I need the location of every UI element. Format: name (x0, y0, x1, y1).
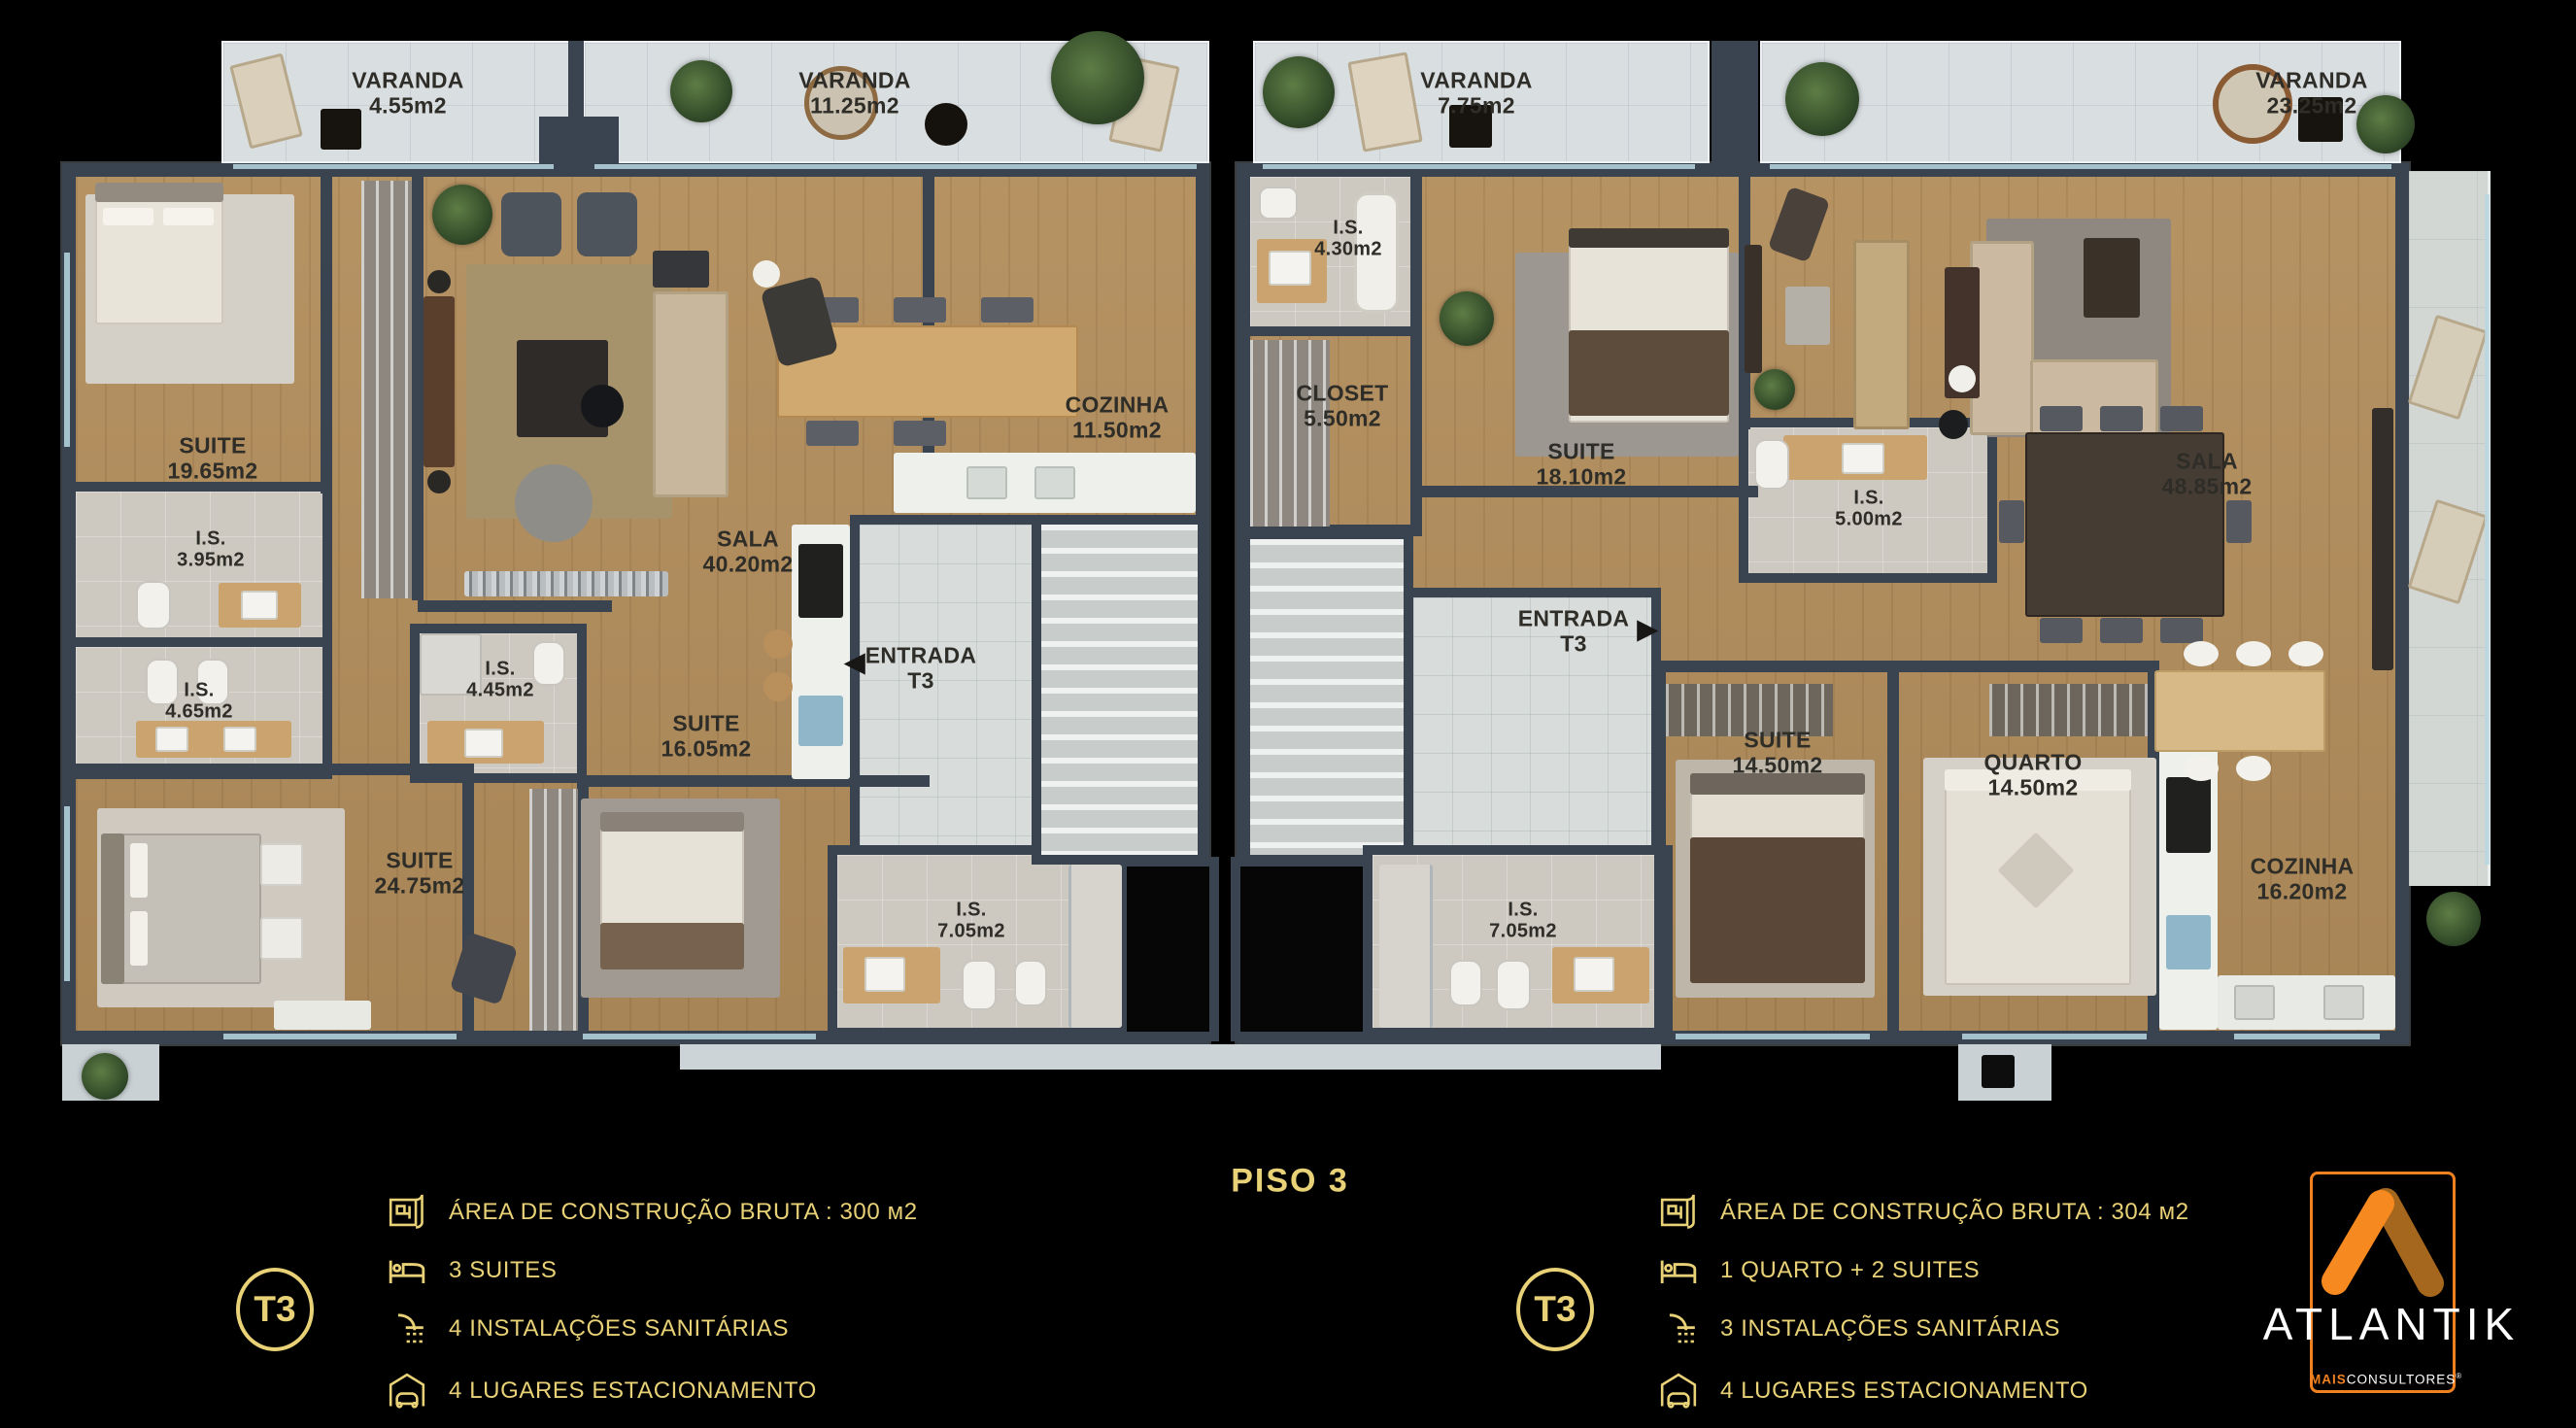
room-label-is-705-right: I.S.7.05m2 (1489, 900, 1557, 943)
room-area: 4.55m2 (369, 93, 447, 119)
chair (2160, 618, 2203, 643)
room-label-varanda-2: VARANDA11.25m2 (798, 68, 910, 119)
room-area: 14.50m2 (1988, 775, 2079, 800)
page-title: PISO 3 (1231, 1163, 1349, 1201)
chair (2236, 641, 2271, 666)
elevator-shaft-left (1117, 857, 1219, 1041)
headboard (95, 183, 223, 202)
pillow (130, 911, 148, 966)
room-label-suite-1810: SUITE18.10m2 (1537, 439, 1627, 490)
room-name: I.S. (195, 528, 225, 550)
chair (2184, 756, 2219, 781)
toilet (532, 641, 565, 686)
room-label-is-395: I.S.3.95m2 (177, 528, 245, 572)
pouf (1939, 410, 1968, 439)
pouf (427, 270, 451, 293)
tv-console (2372, 408, 2393, 670)
shower (1379, 865, 1433, 1028)
legend-text: 3 SUITES (449, 1257, 558, 1284)
window (583, 1034, 816, 1039)
room-name: CLOSET (1296, 381, 1388, 406)
entrance-arrow-left-icon: ◀ (845, 648, 865, 678)
window (223, 1034, 457, 1039)
room-name: VARANDA (2255, 68, 2367, 93)
legend-right-row-area: ÁREA DE CONSTRUÇÃO BRUTA : 304 м2 (1656, 1189, 2189, 1236)
room-name: SUITE (179, 433, 246, 459)
cooktop (798, 544, 843, 618)
side-table (1949, 365, 1976, 392)
window (1770, 164, 2391, 169)
headboard (101, 833, 124, 984)
plant (432, 185, 492, 245)
room-name: COZINHA (1066, 392, 1169, 418)
ottoman (260, 917, 303, 960)
wall (66, 764, 474, 775)
room-name: QUARTO (1983, 750, 2082, 775)
bidet (1014, 960, 1047, 1006)
wall (1410, 177, 1422, 536)
room-label-entrada-right: ENTRADAT3 (1518, 606, 1630, 657)
room-area: 16.05m2 (661, 736, 752, 762)
room-label-cozinha-right: COZINHA16.20m2 (2251, 854, 2355, 904)
coffee-table (2084, 238, 2140, 318)
typology-label: T3 (254, 1289, 295, 1330)
room-area: 23.25m2 (2267, 93, 2357, 119)
side-table (753, 260, 780, 288)
sideboard (1745, 245, 1762, 373)
room-label-is-465: I.S.4.65m2 (165, 680, 233, 724)
kitchen-sink (1034, 466, 1075, 499)
room-label-is-705-left: I.S.7.05m2 (937, 900, 1005, 943)
window (1263, 164, 1695, 169)
window (233, 164, 554, 169)
shower (1068, 865, 1122, 1028)
bar-table (2154, 670, 2325, 752)
plant (1051, 31, 1144, 124)
toilet (1496, 960, 1531, 1010)
room-name: ENTRADA (865, 643, 977, 668)
room-area: 48.85m2 (2162, 474, 2253, 499)
bed-throw (1690, 837, 1865, 983)
window (2234, 1034, 2380, 1039)
pillow (163, 208, 214, 225)
legend-right-row-sanitarias: 3 INSTALAÇÕES SANITÁRIAS (1656, 1306, 2060, 1352)
window (64, 806, 70, 981)
room-label-is-445: I.S.4.45m2 (466, 659, 534, 702)
sink (1269, 251, 1311, 286)
entrance-arrow-right-icon: ▶ (1638, 615, 1658, 645)
ottoman (260, 843, 303, 886)
room-area: 4.30m2 (1314, 239, 1382, 260)
room-area: 7.75m2 (1438, 93, 1515, 119)
registered-mark: ® (2456, 1372, 2462, 1380)
toilet (136, 581, 171, 629)
room-area: 5.50m2 (1304, 406, 1381, 431)
plant (1263, 56, 1335, 128)
garage-icon (1656, 1369, 1701, 1413)
room-name: I.S. (1333, 218, 1363, 239)
plant (1785, 62, 1859, 136)
kitchen-sink (798, 696, 843, 746)
plant (1440, 291, 1494, 346)
sink (155, 727, 188, 752)
atlantik-subtitle: MAISCONSULTORES® (2310, 1372, 2456, 1387)
stool (763, 672, 793, 701)
typology-badge-left: T3 (236, 1268, 314, 1351)
room-area: 5.00m2 (1835, 509, 1903, 530)
room-name: I.S. (485, 659, 515, 680)
subtitle-rest: CONSULTORES (2347, 1373, 2457, 1387)
chair (2100, 618, 2143, 643)
legend-left-row-area: ÁREA DE CONSTRUÇÃO BRUTA : 300 м2 (385, 1189, 918, 1236)
chair (2226, 500, 2252, 543)
room-label-sala-right: SALA48.85m2 (2162, 449, 2253, 499)
room-area: 4.45m2 (466, 680, 534, 701)
wall-stub (539, 117, 619, 165)
atlantik-chevron-icon (2313, 1184, 2453, 1301)
room-name: VARANDA (352, 68, 463, 93)
room-area: 7.05m2 (1489, 921, 1557, 942)
headboard (1569, 228, 1729, 248)
wall (1654, 661, 1666, 1031)
wall (1887, 672, 1899, 1031)
room-name: SALA (2176, 449, 2238, 474)
chair (806, 421, 859, 446)
typology-badge-right: T3 (1516, 1268, 1594, 1351)
plant (670, 60, 732, 122)
bed-throw (1569, 330, 1729, 416)
room-area: 18.10m2 (1537, 464, 1627, 490)
room-label-quarto: QUARTO14.50m2 (1983, 750, 2082, 800)
room-label-varanda-1: VARANDA4.55m2 (352, 68, 463, 119)
speaker-cabinet (653, 251, 709, 288)
chair (2184, 641, 2219, 666)
pillow (103, 208, 153, 225)
bed (95, 183, 223, 324)
room-name: I.S. (956, 900, 986, 921)
planter-round (925, 103, 967, 146)
toilet (962, 960, 997, 1010)
blueprint-icon (1656, 1190, 1701, 1235)
tray (581, 385, 624, 427)
sink (1574, 957, 1614, 992)
chair (2100, 406, 2143, 431)
legend-left-row-estacionamento: 4 LUGARES ESTACIONAMENTO (385, 1368, 817, 1414)
chair (2160, 406, 2203, 431)
room-name: VARANDA (1420, 68, 1532, 93)
wall (418, 600, 612, 612)
wall (412, 177, 424, 600)
pillow (130, 843, 148, 898)
room-area: 7.05m2 (937, 921, 1005, 942)
bed-throw (600, 923, 744, 969)
plant (2426, 892, 2481, 946)
bed (101, 833, 261, 984)
chair (1999, 500, 2024, 543)
subtitle-bold: MAIS (2310, 1373, 2347, 1387)
garage-icon (385, 1369, 429, 1413)
walkway (680, 1044, 1661, 1070)
sideboard (424, 296, 455, 467)
chair (981, 297, 1034, 323)
window (1962, 1034, 2147, 1039)
legend-text: ÁREA DE CONSTRUÇÃO BRUTA : 304 м2 (1720, 1199, 2189, 1226)
room-area: 14.50m2 (1733, 753, 1823, 778)
wall (1654, 661, 2159, 672)
chair (894, 297, 946, 323)
atlantik-logo-frame (2310, 1172, 2456, 1393)
room-label-suite-2475: SUITE24.75m2 (375, 848, 465, 899)
armchair (577, 192, 637, 256)
wardrobe (1989, 684, 2148, 736)
room-label-suite-1965: SUITE19.65m2 (168, 433, 258, 484)
kitchen-sink (2166, 915, 2211, 969)
chair (2040, 618, 2083, 643)
wardrobe-corridor (361, 181, 412, 598)
cooktop (2166, 777, 2211, 853)
room-name: SALA (717, 527, 779, 552)
balcony-divider-wall (1712, 41, 1758, 163)
stairwell-left (1032, 515, 1207, 865)
planter-box (1982, 1055, 2015, 1088)
window (2485, 194, 2490, 865)
room-area: 4.65m2 (165, 701, 233, 723)
legend-right-row-estacionamento: 4 LUGARES ESTACIONAMENTO (1656, 1368, 2088, 1414)
room-area: 3.95m2 (177, 550, 245, 571)
shower-icon (385, 1307, 429, 1351)
legend-text: 1 QUARTO + 2 SUITES (1720, 1257, 1980, 1284)
legend-text: ÁREA DE CONSTRUÇÃO BRUTA : 300 м2 (449, 1199, 918, 1226)
sink (223, 727, 256, 752)
legend-right-row-quartos: 1 QUARTO + 2 SUITES (1656, 1247, 1980, 1294)
room-name: ENTRADA (1518, 606, 1630, 631)
room-name: VARANDA (798, 68, 910, 93)
room-name: SUITE (1547, 439, 1614, 464)
wall (321, 177, 332, 493)
sink (864, 957, 905, 992)
appliance (2323, 985, 2364, 1020)
room-name: SUITE (1744, 728, 1811, 753)
ottoman (1785, 287, 1830, 345)
room-label-closet: CLOSET5.50m2 (1296, 381, 1388, 431)
room-area: 19.65m2 (168, 459, 258, 484)
room-label-suite-1450: SUITE14.50m2 (1733, 728, 1823, 778)
room-name: COZINHA (2251, 854, 2355, 879)
stairwell-right (1240, 529, 1413, 865)
legend-text: 4 LUGARES ESTACIONAMENTO (449, 1377, 817, 1405)
bed-icon (1656, 1248, 1701, 1293)
window (594, 164, 1197, 169)
room-unit: T3 (1560, 631, 1586, 657)
headboard (600, 812, 744, 832)
legend-left-row-sanitarias: 4 INSTALAÇÕES SANITÁRIAS (385, 1306, 789, 1352)
room-name: I.S. (1508, 900, 1538, 921)
sofa (653, 291, 729, 497)
daybed (1853, 240, 1910, 429)
bookshelf (464, 571, 668, 596)
sink (464, 729, 503, 758)
sink (1842, 443, 1884, 474)
plant (1754, 369, 1795, 410)
room-label-varanda-4: VARANDA23.25m2 (2255, 68, 2367, 119)
chair (2236, 756, 2271, 781)
room-name: SUITE (386, 848, 453, 873)
floor-cushion (515, 464, 593, 542)
wardrobe-closet (1250, 340, 1330, 527)
sink (241, 591, 278, 620)
room-area: 40.20m2 (703, 552, 794, 577)
room-area: 16.20m2 (2257, 879, 2348, 904)
dresser (274, 1001, 371, 1030)
room-area: 11.50m2 (1072, 418, 1162, 443)
chair (894, 421, 946, 446)
bidet (1449, 960, 1482, 1006)
armchair (501, 192, 561, 256)
chair (2040, 406, 2083, 431)
toilet (1259, 187, 1298, 220)
room-name: SUITE (672, 711, 739, 736)
toilet (1754, 439, 1789, 490)
room-area: 24.75m2 (375, 873, 465, 899)
room-unit: T3 (907, 668, 933, 694)
room-label-varanda-3: VARANDA7.75m2 (1420, 68, 1532, 119)
wardrobe-corridor (529, 789, 578, 1031)
floor-plan-canvas: VARANDA4.55m2 VARANDA11.25m2 VARANDA7.75… (0, 0, 2576, 1428)
room-label-is-430: I.S.4.30m2 (1314, 218, 1382, 261)
room-area: 11.25m2 (810, 93, 899, 119)
legend-left-row-suites: 3 SUITES (385, 1247, 558, 1294)
room-label-sala-left: SALA40.20m2 (703, 527, 794, 577)
shower-icon (1656, 1307, 1701, 1351)
legend-text: 4 LUGARES ESTACIONAMENTO (1720, 1377, 2088, 1405)
typology-label: T3 (1534, 1289, 1576, 1330)
elevator-shaft-right (1231, 857, 1379, 1041)
atlantik-brand-text: ATLANTIK (2246, 1298, 2537, 1350)
room-name: I.S. (1853, 488, 1883, 509)
stool (763, 629, 793, 659)
bed-icon (385, 1248, 429, 1293)
room-label-suite-1605: SUITE16.05m2 (661, 711, 752, 762)
legend-text: 4 INSTALAÇÕES SANITÁRIAS (449, 1315, 789, 1343)
appliance (2234, 985, 2275, 1020)
room-label-is-500: I.S.5.00m2 (1835, 488, 1903, 531)
pouf (427, 470, 451, 493)
wall (577, 775, 930, 787)
window (1676, 1034, 1870, 1039)
room-label-cozinha-left: COZINHA11.50m2 (1066, 392, 1169, 443)
plant (82, 1053, 128, 1100)
room-label-entrada-left: ENTRADAT3 (865, 643, 977, 694)
chair (2288, 641, 2323, 666)
kitchen-sink (966, 466, 1007, 499)
room-name: I.S. (184, 680, 214, 701)
legend-text: 3 INSTALAÇÕES SANITÁRIAS (1720, 1315, 2060, 1343)
window (64, 253, 70, 447)
blueprint-icon (385, 1190, 429, 1235)
